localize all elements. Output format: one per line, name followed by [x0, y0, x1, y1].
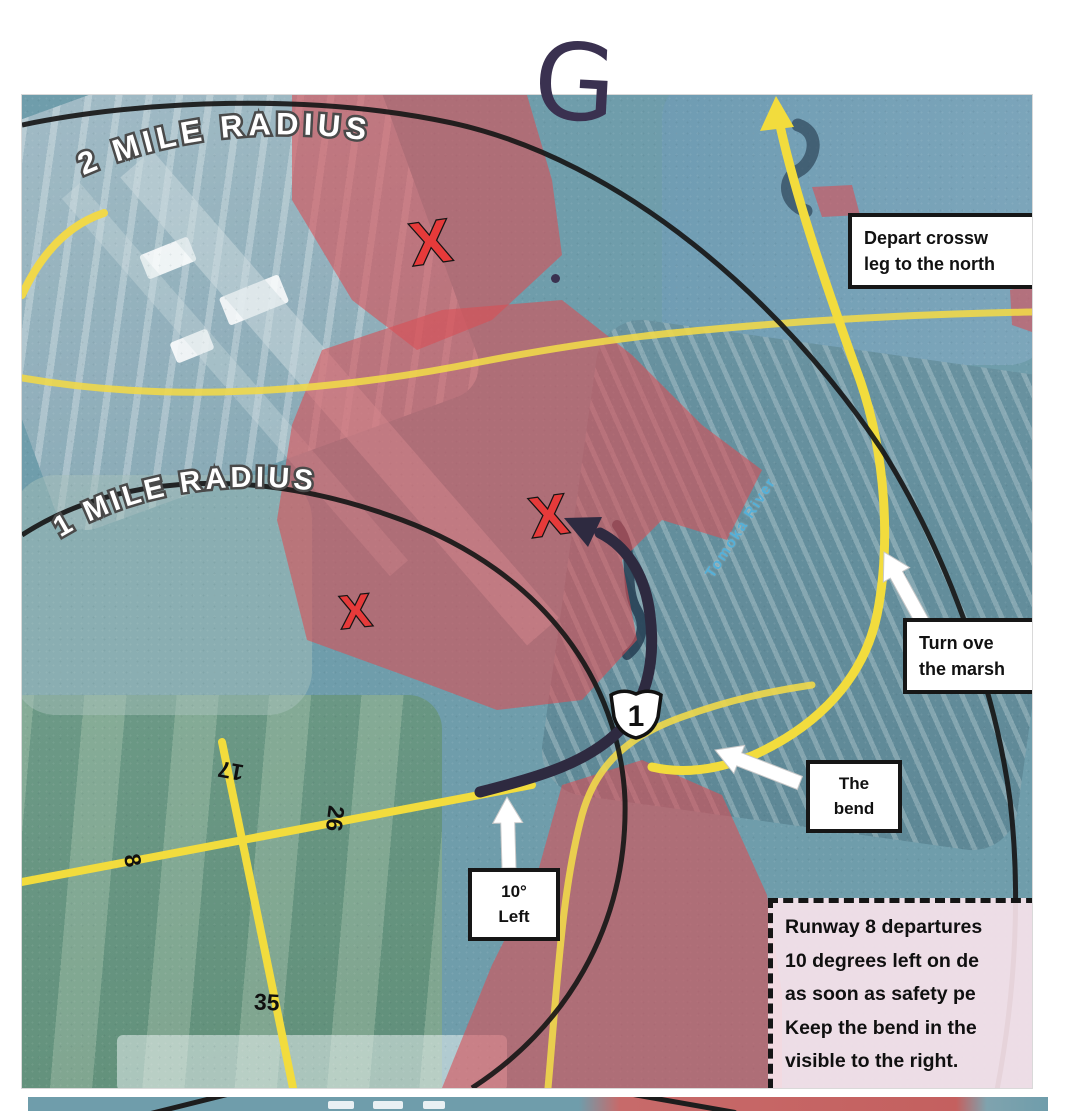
the-bend-callout: The bend	[806, 760, 902, 833]
note-line-5: visible to the right.	[785, 1045, 1032, 1079]
handwritten-letter-g: G	[524, 22, 644, 142]
strip-arc	[129, 1097, 237, 1111]
bend-callout-line2: bend	[822, 797, 886, 822]
next-page-map-strip	[28, 1097, 1048, 1111]
runway-17-35-line	[222, 742, 293, 1088]
runway-35-label: 35	[253, 988, 280, 1016]
ink-dot	[551, 274, 560, 283]
runway8-procedure-note: Runway 8 departures 10 degrees left on d…	[768, 898, 1032, 1088]
runway-26-label: 26	[320, 804, 350, 833]
turn-callout-line1: Turn ove	[919, 630, 1032, 656]
one-mile-radius-text: 1 MILE RADIUS	[48, 462, 319, 544]
note-line-3: as soon as safety pe	[785, 978, 1032, 1012]
ten-degrees-left-callout: 10° Left	[468, 868, 560, 941]
handwritten-g-text: G	[531, 22, 619, 142]
shield-number: 1	[628, 700, 645, 733]
note-line-4: Keep the bend in the	[785, 1012, 1032, 1046]
note-line-2: 10 degrees left on de	[785, 945, 1032, 979]
strip-text-blob	[373, 1101, 403, 1109]
bend-callout-line1: The	[822, 772, 886, 797]
x-mark-west-icon: X	[337, 583, 373, 638]
us-route-1-shield: 1	[606, 685, 666, 743]
depart-callout-line1: Depart crossw	[864, 225, 1032, 251]
note-line-1: Runway 8 departures	[785, 911, 1032, 945]
road-topleft	[22, 213, 104, 295]
runway-17-label: 17	[216, 755, 246, 786]
depart-crosswind-callout: Depart crossw leg to the north	[848, 213, 1032, 289]
left10-arrow-icon	[492, 797, 524, 869]
scanned-page: { "annotations": { "handwritten_letter":…	[0, 0, 1083, 1111]
turn-callout-line2: the marsh	[919, 656, 1032, 682]
depart-callout-line2: leg to the north	[864, 251, 1032, 277]
strip-text-blob	[328, 1101, 354, 1109]
runway-8-26-line	[22, 785, 532, 882]
strip-arc	[609, 1097, 738, 1111]
one-mile-radius-label: 1 MILE RADIUS	[48, 462, 319, 544]
turn-over-marsh-callout: Turn ove the marsh	[903, 618, 1032, 694]
aerial-procedure-map: 2 MILE RADIUS 1 MILE RADIUS X X X T	[22, 95, 1032, 1088]
left10-callout-line1: 10°	[484, 880, 544, 905]
route-arrowhead-icon	[760, 96, 794, 131]
left10-callout-line2: Left	[484, 905, 544, 930]
noise-area-edge	[1010, 285, 1032, 332]
strip-text-blob	[423, 1101, 445, 1109]
